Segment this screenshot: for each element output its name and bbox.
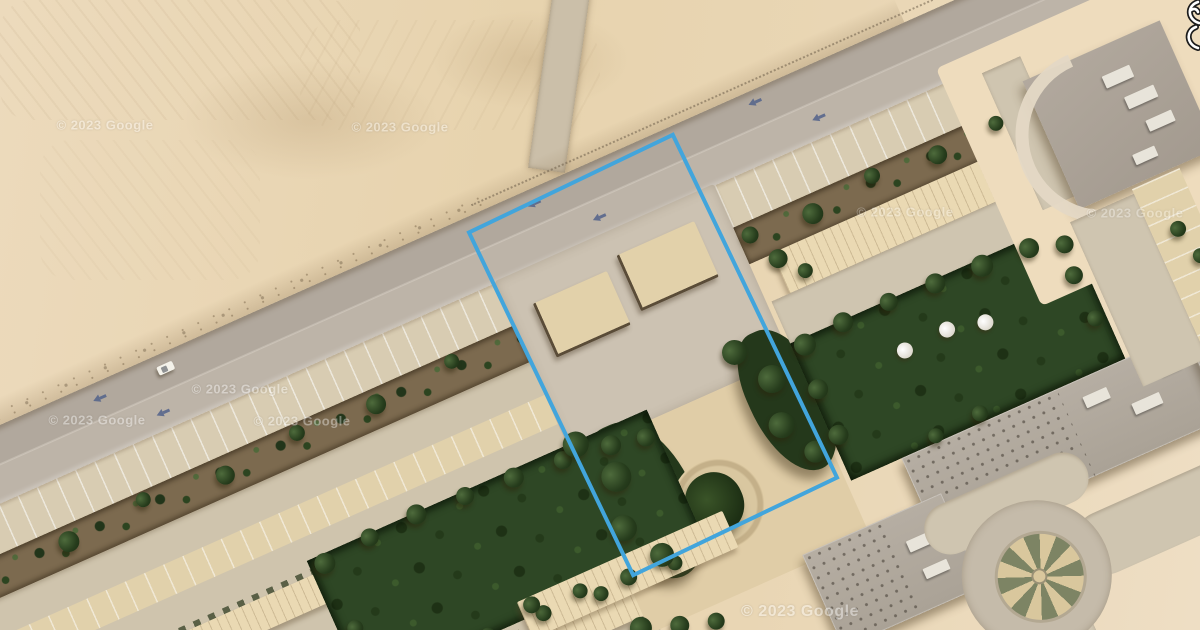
- rooftop-unit: [1082, 387, 1111, 409]
- map-label-fragment-icon: [1158, 0, 1200, 54]
- satellite-map-canvas[interactable]: © 2023 Google© 2023 Google© 2023 Google©…: [0, 0, 1200, 630]
- garden-umbrella: [936, 319, 957, 340]
- garden-umbrella: [894, 340, 915, 361]
- garden-umbrella: [975, 312, 996, 333]
- tree: [705, 610, 727, 630]
- desert-smudge: [430, 10, 630, 110]
- rooftop-unit: [922, 559, 950, 580]
- rooftop-unit: [1131, 392, 1163, 415]
- desert-smudge: [180, 60, 440, 180]
